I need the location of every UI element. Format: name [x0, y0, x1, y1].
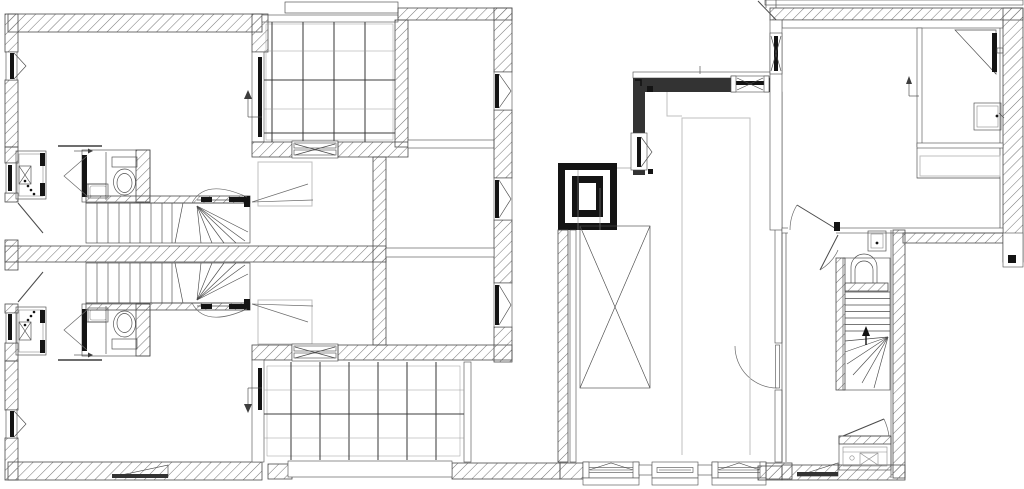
casement-window-icon [6, 410, 26, 438]
terrace-tile-grid [264, 22, 395, 142]
floor-plan-drawing [0, 0, 1024, 489]
sliding-door-icon [292, 141, 338, 158]
upper-wardrobe [16, 151, 46, 199]
shower-icon [955, 30, 1003, 74]
garage-bottom-windows [560, 462, 792, 485]
toilet-icon [112, 311, 137, 349]
upper-staircase [86, 184, 313, 243]
garage-walls [631, 66, 782, 462]
door-swing [18, 272, 43, 302]
wc-basin-icon [868, 231, 886, 251]
casement-window-icon [6, 313, 17, 343]
planter [288, 461, 452, 477]
door-swing [252, 184, 313, 202]
door-leaf [82, 309, 87, 351]
hall-doors [788, 205, 840, 270]
left-building [5, 2, 560, 480]
toilet-icon [112, 157, 137, 195]
right-building [758, 0, 1023, 480]
door-leaf [776, 345, 780, 388]
right-building-walls [758, 0, 1023, 480]
canopy-outline [285, 2, 398, 13]
lower-bathroom [58, 304, 150, 360]
door-swing [735, 346, 777, 388]
casement-window-icon [494, 283, 512, 327]
shower-glass [992, 33, 997, 72]
wash-basin-icon [974, 103, 1004, 130]
door-swing [18, 203, 43, 233]
upper-bathroom [58, 146, 150, 202]
door-leaf [82, 155, 87, 197]
chimney-flue-icon [558, 163, 633, 230]
casement-window-icon [494, 178, 512, 220]
rug-outline [258, 162, 312, 206]
winder-treads [197, 263, 248, 300]
crossed-void [580, 226, 650, 388]
winder-treads [197, 206, 248, 243]
sliding-door-icon [292, 344, 338, 361]
casement-window-icon [6, 163, 17, 193]
rug-outline [258, 300, 312, 344]
shower-room [906, 28, 1004, 178]
lower-staircase [86, 263, 313, 322]
casement-window-icon [770, 33, 782, 74]
sliding-door-leaf [258, 368, 262, 410]
sliding-door-leaf [258, 57, 262, 137]
garage-interior-outline [667, 92, 750, 455]
upper-terrace [244, 2, 494, 158]
floor-plan-svg [0, 0, 1024, 489]
window-icon [583, 462, 639, 485]
middle-section [558, 66, 792, 485]
casement-window-icon [494, 72, 512, 110]
door-swing [252, 304, 313, 322]
casement-window-icon [6, 52, 26, 80]
window-icon [652, 462, 698, 485]
door-swing [843, 419, 884, 436]
garage-top-window-icon [731, 76, 769, 92]
lower-terrace [244, 344, 560, 479]
toilet-icon [845, 254, 888, 291]
door-swing [797, 205, 838, 230]
door-swing [820, 235, 838, 270]
counter-unit [839, 419, 891, 470]
left-building-walls [5, 14, 386, 480]
lower-wardrobe [16, 307, 46, 355]
garage-side-window-icon [631, 133, 652, 170]
right-staircase [836, 258, 890, 390]
party-wall [5, 246, 386, 262]
stair-direction-arrow-icon [862, 326, 870, 345]
terrace-tile-grid [264, 362, 464, 460]
